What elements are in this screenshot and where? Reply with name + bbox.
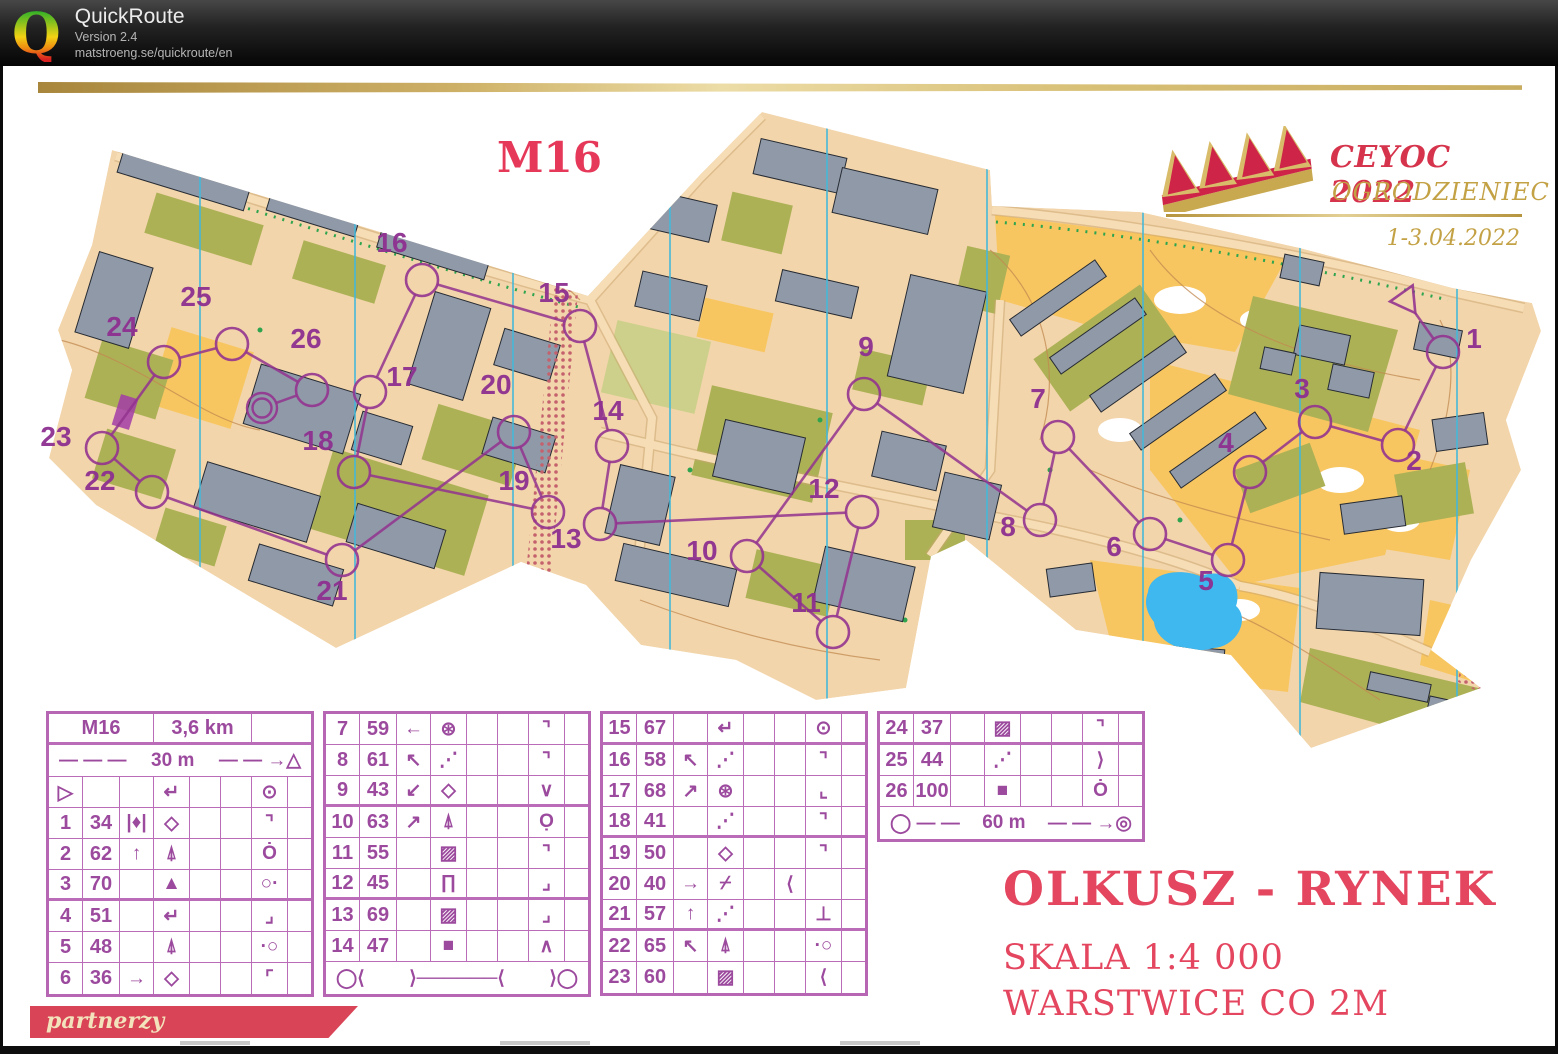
desc-cell: 20	[603, 869, 637, 900]
control-number: 12	[808, 473, 839, 504]
desc-cell: M16	[49, 714, 154, 745]
desc-row: 1768↗⊛⌞	[603, 776, 865, 807]
desc-cell: ⋰	[708, 807, 744, 838]
app-version: Version 2.4	[75, 29, 233, 45]
desc-cell	[288, 808, 311, 839]
desc-row: 451↵⌟	[49, 901, 311, 932]
control-description-table: M163,6 km— — —30 m— — →△▷↵⊙134|♦|◇⌝262↑⍋…	[46, 711, 314, 997]
desc-cell	[288, 901, 311, 932]
desc-cell: |♦|	[120, 808, 154, 839]
control-number: 26	[290, 323, 321, 354]
desc-cell: ↗	[674, 776, 708, 807]
desc-cell	[498, 838, 529, 869]
desc-cell: ▨	[431, 900, 467, 931]
desc-cell: ∧	[529, 931, 565, 962]
desc-cell: ⌝	[1083, 714, 1119, 745]
app-title-block: QuickRoute Version 2.4 matstroeng.se/qui…	[75, 5, 233, 61]
desc-cell	[221, 777, 252, 808]
desc-cell: ⌞	[806, 776, 842, 807]
app-title: QuickRoute	[75, 5, 233, 29]
desc-row: 1658↖⋰⌝	[603, 745, 865, 776]
desc-cell: 21	[603, 900, 637, 931]
desc-row: 1567↵⊙	[603, 714, 865, 745]
control-number: 25	[180, 281, 211, 312]
desc-cell	[775, 776, 806, 807]
desc-row: 2544⋰⟩	[880, 745, 1142, 776]
desc-cell	[1021, 745, 1052, 776]
desc-cell: 62	[83, 839, 120, 870]
desc-cell	[467, 776, 498, 807]
desc-cell: ⌝	[529, 714, 565, 745]
desc-cell: 26	[880, 776, 914, 807]
desc-cell: ⌟	[529, 869, 565, 900]
desc-cell: ■	[431, 931, 467, 962]
desc-cell: 13	[326, 900, 360, 931]
control-number: 17	[386, 361, 417, 392]
desc-cell: 65	[637, 931, 674, 962]
desc-cell	[775, 745, 806, 776]
desc-cell: ⍋	[154, 932, 190, 963]
desc-cell: →	[120, 963, 154, 994]
desc-cell: ·○	[252, 932, 288, 963]
desc-cell: ↑	[674, 900, 708, 931]
desc-cell	[744, 900, 775, 931]
desc-cell: ⌜	[252, 963, 288, 994]
desc-cell: ⊙	[806, 714, 842, 745]
partner-logo-fragment	[180, 1041, 250, 1045]
desc-cell	[744, 869, 775, 900]
desc-cell: 61	[360, 745, 397, 776]
desc-cell: ⟨	[806, 962, 842, 993]
desc-cell: 57	[637, 900, 674, 931]
desc-cell	[806, 869, 842, 900]
desc-cell	[565, 807, 588, 838]
desc-cell: ·○	[806, 931, 842, 962]
desc-cell	[565, 776, 588, 807]
desc-cell: ↵	[154, 777, 190, 808]
desc-cell: 59	[360, 714, 397, 745]
map-scale-text: SKALA 1:4 000	[1003, 938, 1284, 978]
desc-cell: ◇	[154, 963, 190, 994]
desc-row: 1369▨⌟	[326, 900, 588, 931]
desc-cell	[842, 900, 865, 931]
control-number: 11	[791, 587, 821, 618]
desc-row: 2040→⌿⟨	[603, 869, 865, 900]
control-description-table: 2437▨⌝2544⋰⟩26100■Ȯ◯ — —60 m— — →◎	[877, 711, 1145, 842]
desc-row: 548⍋·○	[49, 932, 311, 963]
desc-cell: 44	[914, 745, 951, 776]
desc-cell: 4	[49, 901, 83, 932]
desc-cell: ▷	[49, 777, 83, 808]
desc-cell	[120, 870, 154, 901]
ceyoc-event-logo: CEYOC 2022 OGRODZIENIEC 1-3.04.2022	[1146, 126, 1526, 256]
desc-cell: 43	[360, 776, 397, 807]
desc-row: 1447■∧	[326, 931, 588, 962]
desc-cell: 7	[326, 714, 360, 745]
control-number: 4	[1218, 427, 1234, 458]
desc-cell	[288, 839, 311, 870]
desc-cell	[467, 745, 498, 776]
desc-cell: ⊥	[806, 900, 842, 931]
desc-cell	[498, 776, 529, 807]
desc-cell: ⟨	[775, 869, 806, 900]
desc-cell	[83, 777, 120, 808]
desc-cell	[190, 870, 221, 901]
desc-cell	[221, 963, 252, 994]
title-bar: Q QuickRoute Version 2.4 matstroeng.se/q…	[0, 0, 1558, 66]
desc-cell: ∨	[529, 776, 565, 807]
desc-cell: ⊛	[431, 714, 467, 745]
desc-cell	[221, 932, 252, 963]
desc-cell: 17	[603, 776, 637, 807]
control-number: 6	[1106, 531, 1122, 562]
desc-cell: ↵	[154, 901, 190, 932]
desc-cell: ▨	[431, 838, 467, 869]
desc-cell	[498, 931, 529, 962]
desc-cell: ⍋	[708, 931, 744, 962]
desc-cell	[221, 839, 252, 870]
desc-cell	[842, 745, 865, 776]
map-canvas[interactable]: 1234567891011121314151617181920212223242…	[0, 0, 1558, 1054]
desc-row: 1245∏⌟	[326, 869, 588, 900]
desc-cell	[467, 714, 498, 745]
desc-cell	[190, 839, 221, 870]
ceyoc-location: OGRODZIENIEC	[1332, 178, 1550, 206]
desc-cell: 25	[880, 745, 914, 776]
control-number: 5	[1198, 565, 1214, 596]
desc-cell: ←	[397, 714, 431, 745]
desc-cell	[498, 900, 529, 931]
control-number: 22	[84, 465, 115, 496]
desc-row: 1950◇⌝	[603, 838, 865, 869]
desc-cell	[842, 962, 865, 993]
desc-cell: 6	[49, 963, 83, 994]
control-number: 10	[686, 535, 717, 566]
desc-cell: 60	[637, 962, 674, 993]
desc-cell	[467, 807, 498, 838]
desc-row: 2157↑⋰⊥	[603, 900, 865, 931]
desc-cell	[744, 838, 775, 869]
desc-row: 759←⊛⌝	[326, 714, 588, 745]
desc-cell	[842, 838, 865, 869]
desc-cell: →	[674, 869, 708, 900]
desc-cell: 36	[83, 963, 120, 994]
desc-cell	[120, 901, 154, 932]
desc-cell	[1119, 714, 1142, 745]
desc-cell: ⋰	[431, 745, 467, 776]
desc-cell	[674, 714, 708, 745]
desc-cell: ◇	[431, 776, 467, 807]
partners-banner: partnerzy	[30, 1006, 358, 1038]
control-number: 9	[858, 331, 874, 362]
desc-cell: 8	[326, 745, 360, 776]
desc-cell: ⌟	[529, 900, 565, 931]
desc-cell: ⌝	[806, 745, 842, 776]
desc-cell: ⌝	[806, 807, 842, 838]
desc-cell: 11	[326, 838, 360, 869]
ceyoc-dates: 1-3.04.2022	[1387, 226, 1520, 251]
partner-logo-fragment	[840, 1041, 920, 1045]
desc-cell: ◇	[154, 808, 190, 839]
desc-cell: ⍋	[431, 807, 467, 838]
control-number: 15	[538, 277, 569, 308]
desc-cell	[674, 838, 708, 869]
control-number: 1	[1466, 323, 1482, 354]
desc-row: 134|♦|◇⌝	[49, 808, 311, 839]
desc-cell	[190, 901, 221, 932]
desc-cell: ⌿	[708, 869, 744, 900]
control-number: 23	[40, 421, 71, 452]
desc-cell	[397, 838, 431, 869]
desc-row: 370▲○·	[49, 870, 311, 901]
desc-cell: Ȯ	[1083, 776, 1119, 807]
desc-cell: ⌝	[806, 838, 842, 869]
desc-row: 26100■Ȯ	[880, 776, 1142, 807]
ceyoc-crown-icon	[1146, 126, 1326, 212]
desc-cell	[190, 963, 221, 994]
desc-row: 2360▨⟨	[603, 962, 865, 993]
desc-cell: Ọ	[529, 807, 565, 838]
quickroute-window: Q QuickRoute Version 2.4 matstroeng.se/q…	[0, 0, 1558, 1054]
desc-cell: ⌟	[252, 901, 288, 932]
desc-cell: 15	[603, 714, 637, 745]
desc-cell: 50	[637, 838, 674, 869]
desc-row: 2265↖⍋·○	[603, 931, 865, 962]
desc-cell	[744, 807, 775, 838]
desc-cell	[1052, 745, 1083, 776]
desc-cell: ∏	[431, 869, 467, 900]
desc-cell: ⟩	[1083, 745, 1119, 776]
desc-cell	[190, 808, 221, 839]
desc-cell: 22	[603, 931, 637, 962]
desc-cell: ⋰	[985, 745, 1021, 776]
desc-cell	[288, 963, 311, 994]
desc-cell	[467, 869, 498, 900]
desc-cell	[120, 777, 154, 808]
desc-special-row: — — —30 m— — →△	[49, 745, 311, 777]
desc-cell	[221, 808, 252, 839]
desc-cell: 12	[326, 869, 360, 900]
control-description-table: 1567↵⊙1658↖⋰⌝1768↗⊛⌞1841⋰⌝1950◇⌝2040→⌿⟨2…	[600, 711, 868, 996]
desc-cell: ⍋	[154, 839, 190, 870]
desc-cell	[397, 869, 431, 900]
desc-cell: 67	[637, 714, 674, 745]
desc-cell: 2	[49, 839, 83, 870]
desc-cell: ⋰	[708, 900, 744, 931]
desc-cell	[744, 962, 775, 993]
desc-cell	[842, 931, 865, 962]
partner-logo-fragment	[500, 1041, 590, 1045]
window-bottom-edge	[0, 1046, 1558, 1054]
desc-cell: 51	[83, 901, 120, 932]
desc-cell	[842, 869, 865, 900]
desc-cell: ↖	[674, 745, 708, 776]
desc-cell: 70	[83, 870, 120, 901]
desc-cell	[842, 714, 865, 745]
desc-cell: ↙	[397, 776, 431, 807]
control-number: 18	[302, 425, 333, 456]
desc-cell: 16	[603, 745, 637, 776]
desc-cell	[565, 838, 588, 869]
desc-cell	[565, 745, 588, 776]
desc-cell: ⌝	[252, 808, 288, 839]
desc-cell	[221, 901, 252, 932]
desc-cell: 9	[326, 776, 360, 807]
desc-cell: ⋰	[708, 745, 744, 776]
desc-special-row: ◯ — —60 m— — →◎	[880, 807, 1142, 839]
desc-cell: ⌝	[529, 838, 565, 869]
desc-cell	[842, 776, 865, 807]
desc-cell	[467, 931, 498, 962]
desc-cell	[190, 777, 221, 808]
desc-cell	[565, 714, 588, 745]
desc-cell	[221, 870, 252, 901]
quickroute-logo-icon: Q	[12, 6, 61, 62]
desc-cell: 23	[603, 962, 637, 993]
desc-special-row: ◯⟨⟩──────⟨⟩◯	[326, 962, 588, 994]
desc-cell	[190, 932, 221, 963]
desc-cell: 14	[326, 931, 360, 962]
desc-cell: ↗	[397, 807, 431, 838]
desc-cell	[288, 870, 311, 901]
desc-cell: 3	[49, 870, 83, 901]
desc-cell: ▨	[985, 714, 1021, 745]
control-number: 14	[592, 395, 624, 426]
desc-cell: ○·	[252, 870, 288, 901]
desc-header-row: M163,6 km	[49, 714, 311, 745]
desc-cell: 5	[49, 932, 83, 963]
desc-cell: ↖	[397, 745, 431, 776]
desc-cell: 18	[603, 807, 637, 838]
desc-cell	[1021, 714, 1052, 745]
desc-cell	[467, 900, 498, 931]
desc-cell: ↵	[708, 714, 744, 745]
desc-cell	[775, 900, 806, 931]
desc-cell: 1	[49, 808, 83, 839]
desc-cell: ⌝	[529, 745, 565, 776]
desc-cell: 68	[637, 776, 674, 807]
desc-cell	[744, 776, 775, 807]
ceyoc-divider	[1166, 214, 1522, 217]
desc-row: 636→◇⌜	[49, 963, 311, 994]
desc-cell	[498, 714, 529, 745]
control-number: 16	[376, 227, 407, 258]
control-number: 7	[1030, 383, 1046, 414]
desc-cell	[842, 807, 865, 838]
desc-cell: ▲	[154, 870, 190, 901]
app-url[interactable]: matstroeng.se/quickroute/en	[75, 45, 233, 61]
desc-cell: 45	[360, 869, 397, 900]
desc-cell: 100	[914, 776, 951, 807]
desc-cell	[565, 869, 588, 900]
desc-row: 1063↗⍋Ọ	[326, 807, 588, 838]
desc-cell	[1052, 776, 1083, 807]
desc-cell	[951, 745, 985, 776]
desc-cell	[565, 900, 588, 931]
desc-cell	[775, 807, 806, 838]
desc-row: 861↖⋰⌝	[326, 745, 588, 776]
desc-cell: 58	[637, 745, 674, 776]
desc-cell: 63	[360, 807, 397, 838]
desc-cell: ⊛	[708, 776, 744, 807]
desc-cell: 69	[360, 900, 397, 931]
desc-cell	[252, 714, 311, 745]
desc-cell	[498, 807, 529, 838]
map-contour-interval-text: WARSTWICE CO 2M	[1003, 984, 1389, 1024]
desc-cell	[288, 932, 311, 963]
desc-cell	[775, 838, 806, 869]
desc-cell: ⊙	[252, 777, 288, 808]
desc-cell: 55	[360, 838, 397, 869]
desc-cell: ◇	[708, 838, 744, 869]
control-number: 20	[480, 369, 511, 400]
desc-row: 1841⋰⌝	[603, 807, 865, 838]
map-title: OLKUSZ - RYNEK	[1003, 862, 1496, 917]
desc-cell: 47	[360, 931, 397, 962]
desc-cell: 10	[326, 807, 360, 838]
desc-cell: 34	[83, 808, 120, 839]
desc-cell	[397, 931, 431, 962]
desc-cell	[744, 931, 775, 962]
desc-cell	[951, 776, 985, 807]
desc-cell	[775, 962, 806, 993]
desc-cell: 41	[637, 807, 674, 838]
desc-cell: ▨	[708, 962, 744, 993]
control-description-table: 759←⊛⌝861↖⋰⌝943↙◇∨1063↗⍋Ọ1155▨⌝1245∏⌟136…	[323, 711, 591, 997]
course-class-label: M16	[497, 133, 602, 182]
desc-cell	[775, 931, 806, 962]
desc-row: ▷↵⊙	[49, 777, 311, 808]
desc-cell: 40	[637, 869, 674, 900]
desc-cell: 24	[880, 714, 914, 745]
desc-cell: 19	[603, 838, 637, 869]
desc-cell	[120, 932, 154, 963]
desc-cell	[775, 714, 806, 745]
desc-cell	[467, 838, 498, 869]
control-number: 21	[316, 575, 347, 606]
control-number: 24	[106, 311, 138, 342]
desc-cell: 48	[83, 932, 120, 963]
desc-cell: ↑	[120, 839, 154, 870]
desc-cell	[1119, 745, 1142, 776]
desc-cell	[951, 714, 985, 745]
desc-cell	[1021, 776, 1052, 807]
desc-cell	[674, 962, 708, 993]
desc-cell: 3,6 km	[154, 714, 252, 745]
desc-cell	[565, 931, 588, 962]
desc-cell	[288, 777, 311, 808]
control-number: 3	[1294, 373, 1310, 404]
desc-cell: ↖	[674, 931, 708, 962]
desc-cell	[498, 745, 529, 776]
desc-cell	[1119, 776, 1142, 807]
desc-row: 262↑⍋Ȯ	[49, 839, 311, 870]
control-number: 19	[498, 465, 529, 496]
desc-cell	[744, 745, 775, 776]
desc-cell	[1052, 714, 1083, 745]
desc-row: 943↙◇∨	[326, 776, 588, 807]
desc-cell	[674, 807, 708, 838]
desc-row: 1155▨⌝	[326, 838, 588, 869]
desc-cell	[744, 714, 775, 745]
control-number: 2	[1406, 445, 1422, 476]
control-number: 8	[1000, 511, 1016, 542]
desc-cell	[397, 900, 431, 931]
desc-cell	[498, 869, 529, 900]
desc-cell: 37	[914, 714, 951, 745]
desc-cell: ■	[985, 776, 1021, 807]
desc-cell: Ȯ	[252, 839, 288, 870]
